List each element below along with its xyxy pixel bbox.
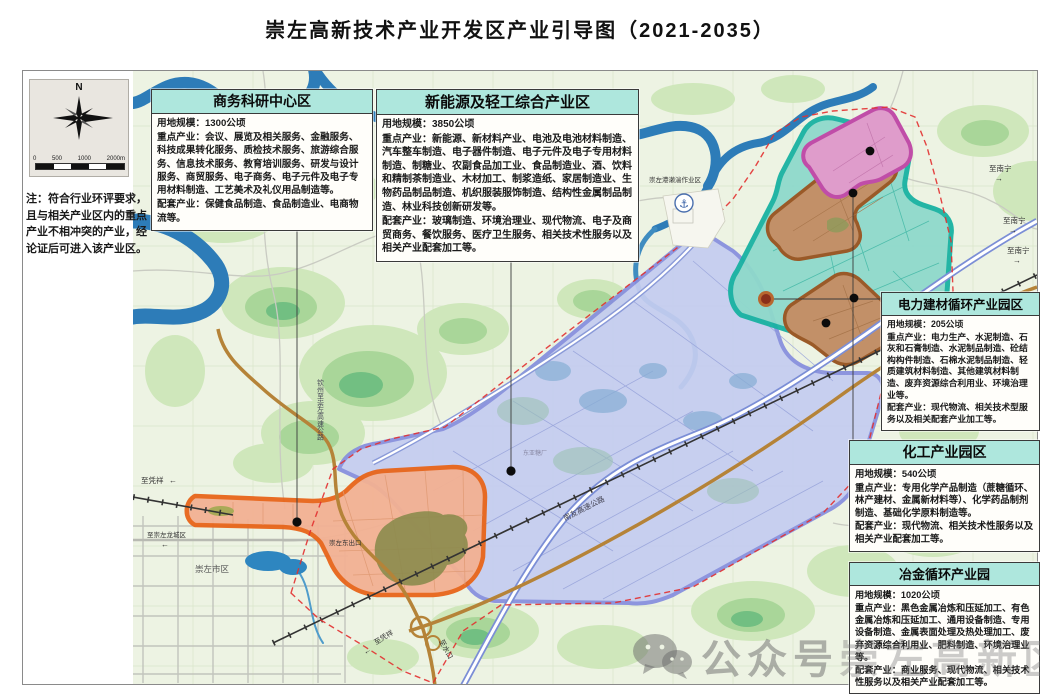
page-title: 崇左高新技术产业开发区产业引导图（2021-2035）: [0, 14, 1040, 43]
land-scale: 用地规模：1300公顷: [157, 117, 367, 130]
support-industries: 配套产业：现代物流、相关技术型服务以及相关配套产业加工等。: [887, 402, 1034, 425]
svg-text:←: ←: [169, 476, 177, 485]
land-scale: 用地规模：540公顷: [855, 468, 1034, 481]
anchor-icon: ⚓: [679, 199, 689, 211]
info-box-title: 电力建材循环产业园区: [882, 293, 1039, 316]
support-industries: 配套产业：商业服务、现代物流、相关技术性服务以及相关产业配套加工等。: [855, 664, 1034, 688]
compass-rose-icon: [30, 92, 128, 144]
info-box-business-rd: 商务科研中心区 用地规模：1300公顷 重点产业：会议、展览及相关服务、金融服务…: [151, 89, 373, 231]
svg-text:→: →: [995, 174, 1003, 183]
east-exit-label: 崇左东出口: [329, 538, 362, 547]
key-industries: 重点产业：会议、展览及相关服务、金融服务、科技成果转化服务、质检技术服务、旅游综…: [157, 131, 367, 197]
land-scale: 用地规模：205公顷: [887, 319, 1034, 331]
svg-text:→: →: [1009, 226, 1017, 235]
key-industries: 重点产业：电力生产、水泥制造、石灰和石膏制造、水泥制品制造、砼结构构件制造、石棉…: [887, 332, 1034, 402]
support-industries: 配套产业：玻璃制造、环境治理业、现代物流、电子及商贸商务、餐饮服务、医疗卫生服务…: [382, 215, 633, 256]
map-sheet-frame: ⚓ 崇左港濑湍作业区 崇左市区 至凭祥 ← 至崇左龙城区 ← 崇左东出口: [22, 70, 1038, 685]
to-nanning-label-2: 至南宁: [1003, 215, 1026, 225]
to-pingxiang-west-label: 至凭祥: [141, 475, 164, 485]
info-box-power-building-materials: 电力建材循环产业园区 用地规模：205公顷 重点产业：电力生产、水泥制造、石灰和…: [881, 292, 1040, 431]
info-box-metallurgy: 冶金循环产业园 用地规模：1020公顷 重点产业：黑色金属冶炼和压延加工、有色金…: [849, 562, 1040, 694]
info-box-title: 冶金循环产业园: [850, 563, 1039, 586]
land-scale: 用地规模：1020公顷: [855, 589, 1034, 601]
scale-bar: [35, 163, 125, 170]
land-scale: 用地规模：3850公顷: [382, 118, 633, 132]
environmental-note: 注：符合行业环评要求，且与相关产业区内的重点产业不相冲突的产业，经论证后可进入该…: [26, 191, 152, 257]
support-industries: 配套产业：保健食品制造、食品制造业、电商物流等。: [157, 198, 367, 224]
svg-text:→: →: [1013, 256, 1021, 265]
info-box-chemical: 化工产业园区 用地规模：540公顷 重点产业：专用化学产品制造（蔗糖循环、林产建…: [849, 440, 1040, 552]
key-industries: 重点产业：新能源、新材料产业、电池及电池材料制造、汽车整车制造、电子器件制造、电…: [382, 133, 633, 215]
info-box-new-energy: 新能源及轻工综合产业区 用地规模：3850公顷 重点产业：新能源、新材料产业、电…: [376, 89, 639, 262]
city-label: 崇左市区: [195, 564, 230, 574]
key-industries: 重点产业：专用化学产品制造（蔗糖循环、林产建材、金属新材料等）、化学药品制剂制造…: [855, 482, 1034, 520]
info-box-title: 化工产业园区: [850, 441, 1039, 465]
key-industries: 重点产业：黑色金属冶炼和压延加工、有色金属冶炼和压延加工、通用设备制造、专用设备…: [855, 602, 1034, 663]
power-plant-marker: [760, 293, 773, 306]
port-label: 崇左港濑湍作业区: [649, 175, 702, 184]
svg-text:←: ←: [161, 540, 169, 549]
scale-bar-ticks: 050010002000m: [33, 156, 125, 162]
to-longcheng-label: 至崇左龙城区: [147, 530, 187, 539]
to-nanning-label-3: 至南宁: [1007, 245, 1030, 255]
info-box-title: 商务科研中心区: [152, 90, 372, 114]
support-industries: 配套产业：现代物流、相关技术性服务以及相关产业配套加工等。: [855, 520, 1034, 545]
to-nanning-label-1: 至南宁: [989, 163, 1012, 173]
info-box-title: 新能源及轻工综合产业区: [377, 90, 638, 115]
compass-scale-box: N 050010002000m: [29, 79, 129, 177]
sugar-factory-label: 东亚糖厂: [523, 449, 547, 457]
